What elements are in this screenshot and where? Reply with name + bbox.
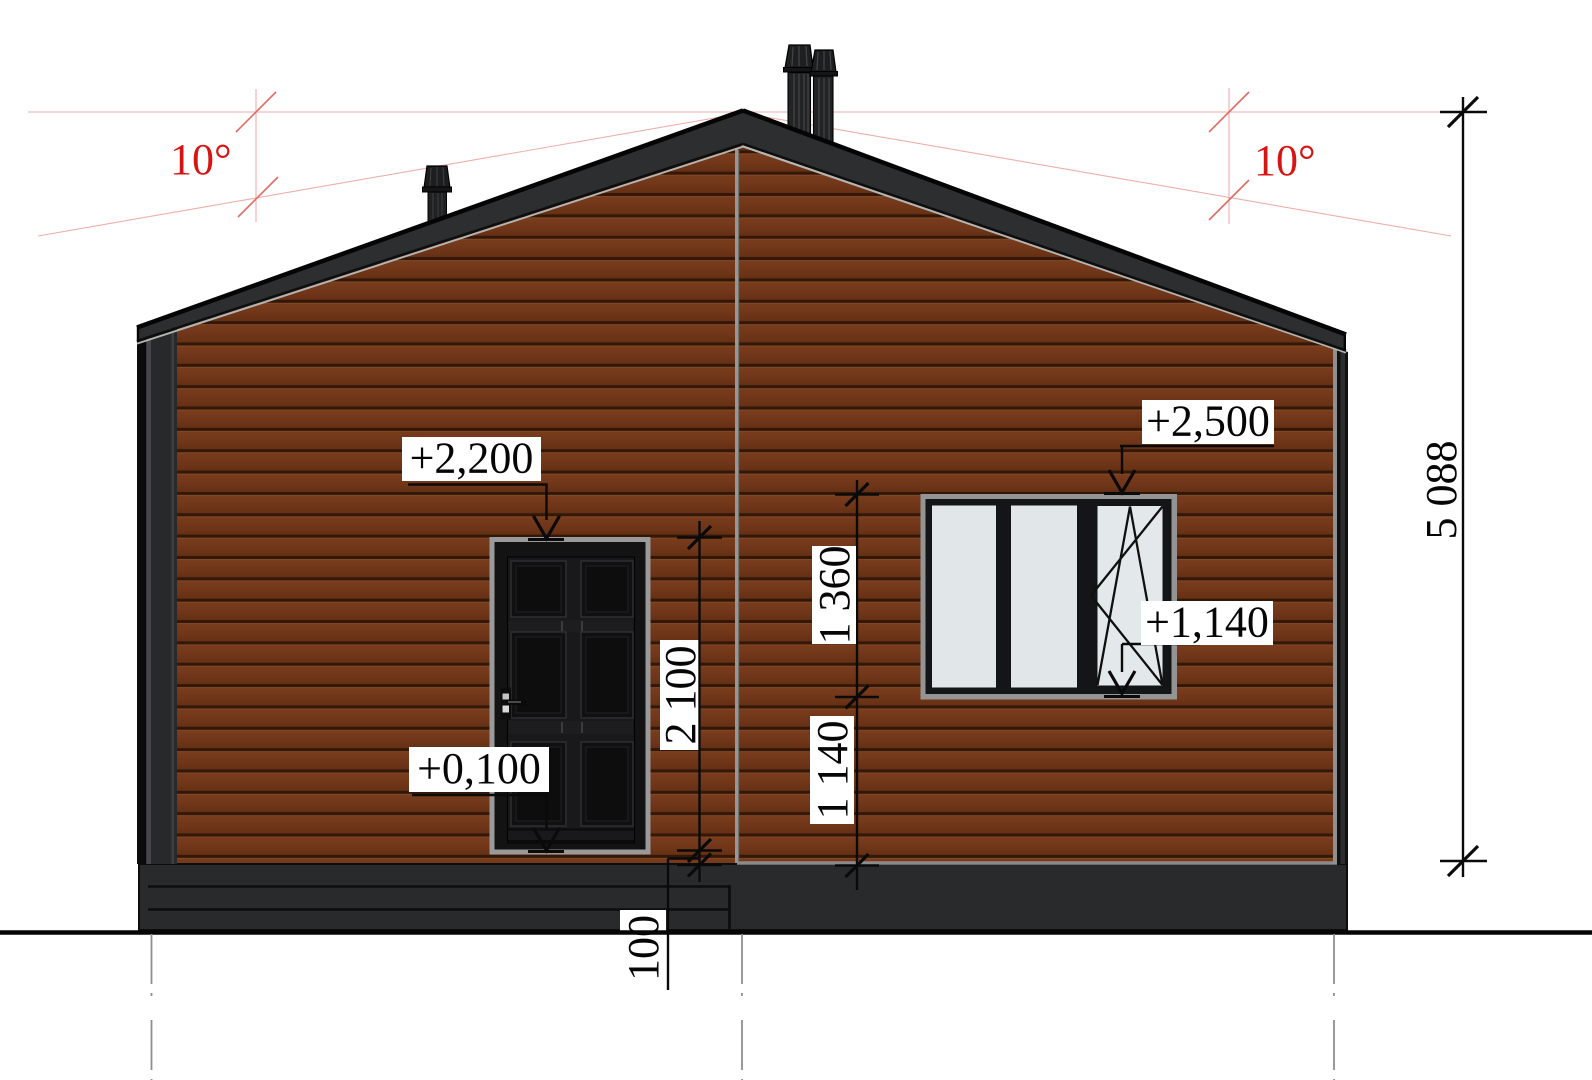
svg-text:1 360: 1 360 <box>810 546 859 645</box>
svg-text:1 140: 1 140 <box>808 721 857 820</box>
svg-text:5 088: 5 088 <box>1417 441 1466 540</box>
svg-text:+2,500: +2,500 <box>1146 397 1270 446</box>
svg-text:+0,100: +0,100 <box>417 744 541 793</box>
svg-text:100: 100 <box>619 915 668 981</box>
svg-text:+1,140: +1,140 <box>1145 598 1269 647</box>
svg-text:+2,200: +2,200 <box>410 434 534 483</box>
svg-text:2 100: 2 100 <box>656 646 705 745</box>
svg-text:10°: 10° <box>1254 136 1316 185</box>
svg-text:10°: 10° <box>170 135 232 184</box>
